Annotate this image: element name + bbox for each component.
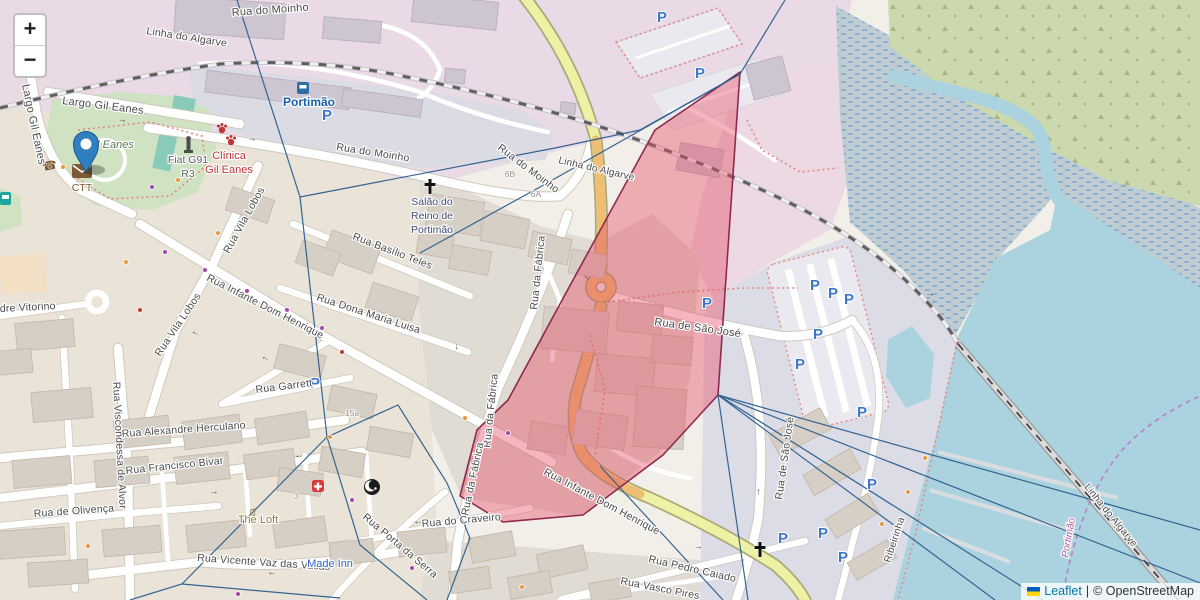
oneway-arrow-icon: →	[752, 488, 762, 497]
poi-dot	[880, 522, 885, 527]
parking-icon: P	[828, 285, 838, 302]
house-number: 3	[294, 491, 299, 501]
attribution-separator: |	[1086, 584, 1089, 598]
map-canvas[interactable]: ☎ ♫ →→→→→→→→→→→→→→→ PPPPPPPPPPPPPPP 6B6A…	[0, 0, 1200, 600]
poi-dot	[61, 165, 66, 170]
leaflet-link[interactable]: Leaflet	[1044, 584, 1082, 598]
building	[102, 525, 162, 557]
parking-icon: P	[322, 107, 332, 124]
parking-icon: P	[778, 530, 788, 547]
bus-stop-icon	[0, 192, 11, 205]
building	[27, 559, 89, 587]
poi-dot	[216, 231, 221, 236]
zoom-control: + −	[13, 13, 47, 78]
house-number: 15a	[345, 408, 359, 418]
house-number: 6B	[505, 169, 516, 179]
poi-dot	[163, 250, 168, 255]
parking-icon: P	[810, 277, 820, 294]
parking-icon: P	[818, 525, 828, 542]
poi-dot	[340, 350, 345, 355]
building	[0, 527, 66, 560]
parking-icon: P	[844, 291, 854, 308]
parking-icon: P	[813, 326, 823, 343]
poi-label: The Loft	[238, 514, 278, 526]
poi-dot	[203, 268, 208, 273]
zoom-in-button[interactable]: +	[15, 15, 45, 46]
mosque-icon	[364, 479, 380, 495]
poi-dot	[124, 260, 129, 265]
poi-dot	[923, 456, 928, 461]
poi-label: R3	[181, 168, 195, 180]
poi-dot	[138, 308, 143, 313]
train-station-icon	[297, 82, 309, 94]
poi-dot	[906, 490, 911, 495]
zoom-out-button[interactable]: −	[15, 46, 45, 76]
poi-label: Fiat G91	[168, 154, 208, 166]
osm-attribution[interactable]: © OpenStreetMap	[1093, 584, 1194, 598]
oneway-arrow-icon: →	[693, 541, 703, 552]
poi-label: Made Inn	[307, 558, 353, 570]
poi-label: Reino de	[411, 210, 453, 222]
poi-dot	[150, 185, 155, 190]
pharmacy-icon	[312, 480, 324, 492]
poi-dot	[236, 592, 241, 597]
oneway-arrow-icon: →	[452, 341, 463, 351]
poi-label: Portimão	[411, 224, 453, 236]
poi-label: CTT	[72, 182, 93, 194]
building	[12, 456, 72, 489]
building	[31, 387, 93, 422]
poi-dot	[176, 178, 181, 183]
oneway-arrow-icon: →	[267, 570, 277, 580]
poi-dot	[463, 416, 468, 421]
building	[444, 68, 465, 84]
poi-dot	[86, 544, 91, 549]
parking-icon: P	[695, 65, 705, 82]
poi-dot	[506, 431, 511, 436]
house-number: 6A	[531, 189, 542, 199]
building	[0, 348, 33, 375]
building	[322, 17, 382, 44]
oneway-arrow-icon: →	[247, 132, 257, 143]
ukraine-flag-icon	[1027, 587, 1040, 596]
poi-label: Clínica	[212, 150, 247, 162]
poi-dot	[410, 566, 415, 571]
poi-dot	[520, 585, 525, 590]
poi-label: Salão do	[411, 196, 453, 208]
parking-icon: P	[838, 549, 848, 566]
parking-icon: P	[857, 404, 867, 421]
building	[15, 319, 75, 352]
parking-icon: P	[867, 476, 877, 493]
parking-icon: P	[657, 9, 667, 26]
oneway-arrow-icon: →	[926, 288, 935, 298]
poi-label: Gil Eanes	[205, 164, 253, 176]
oneway-arrow-icon: →	[209, 486, 218, 496]
parking-icon: P	[795, 356, 805, 373]
poi-dot	[350, 498, 355, 503]
poi-label: Portimão	[283, 95, 335, 109]
attribution-bar: Leaflet | © OpenStreetMap	[1021, 583, 1200, 600]
map-container[interactable]: ☎ ♫ →→→→→→→→→→→→→→→ PPPPPPPPPPPPPPP 6B6A…	[0, 0, 1200, 600]
parking-icon: P	[702, 295, 712, 312]
oneway-arrow-icon: →	[294, 453, 303, 463]
poi-dot	[328, 435, 333, 440]
